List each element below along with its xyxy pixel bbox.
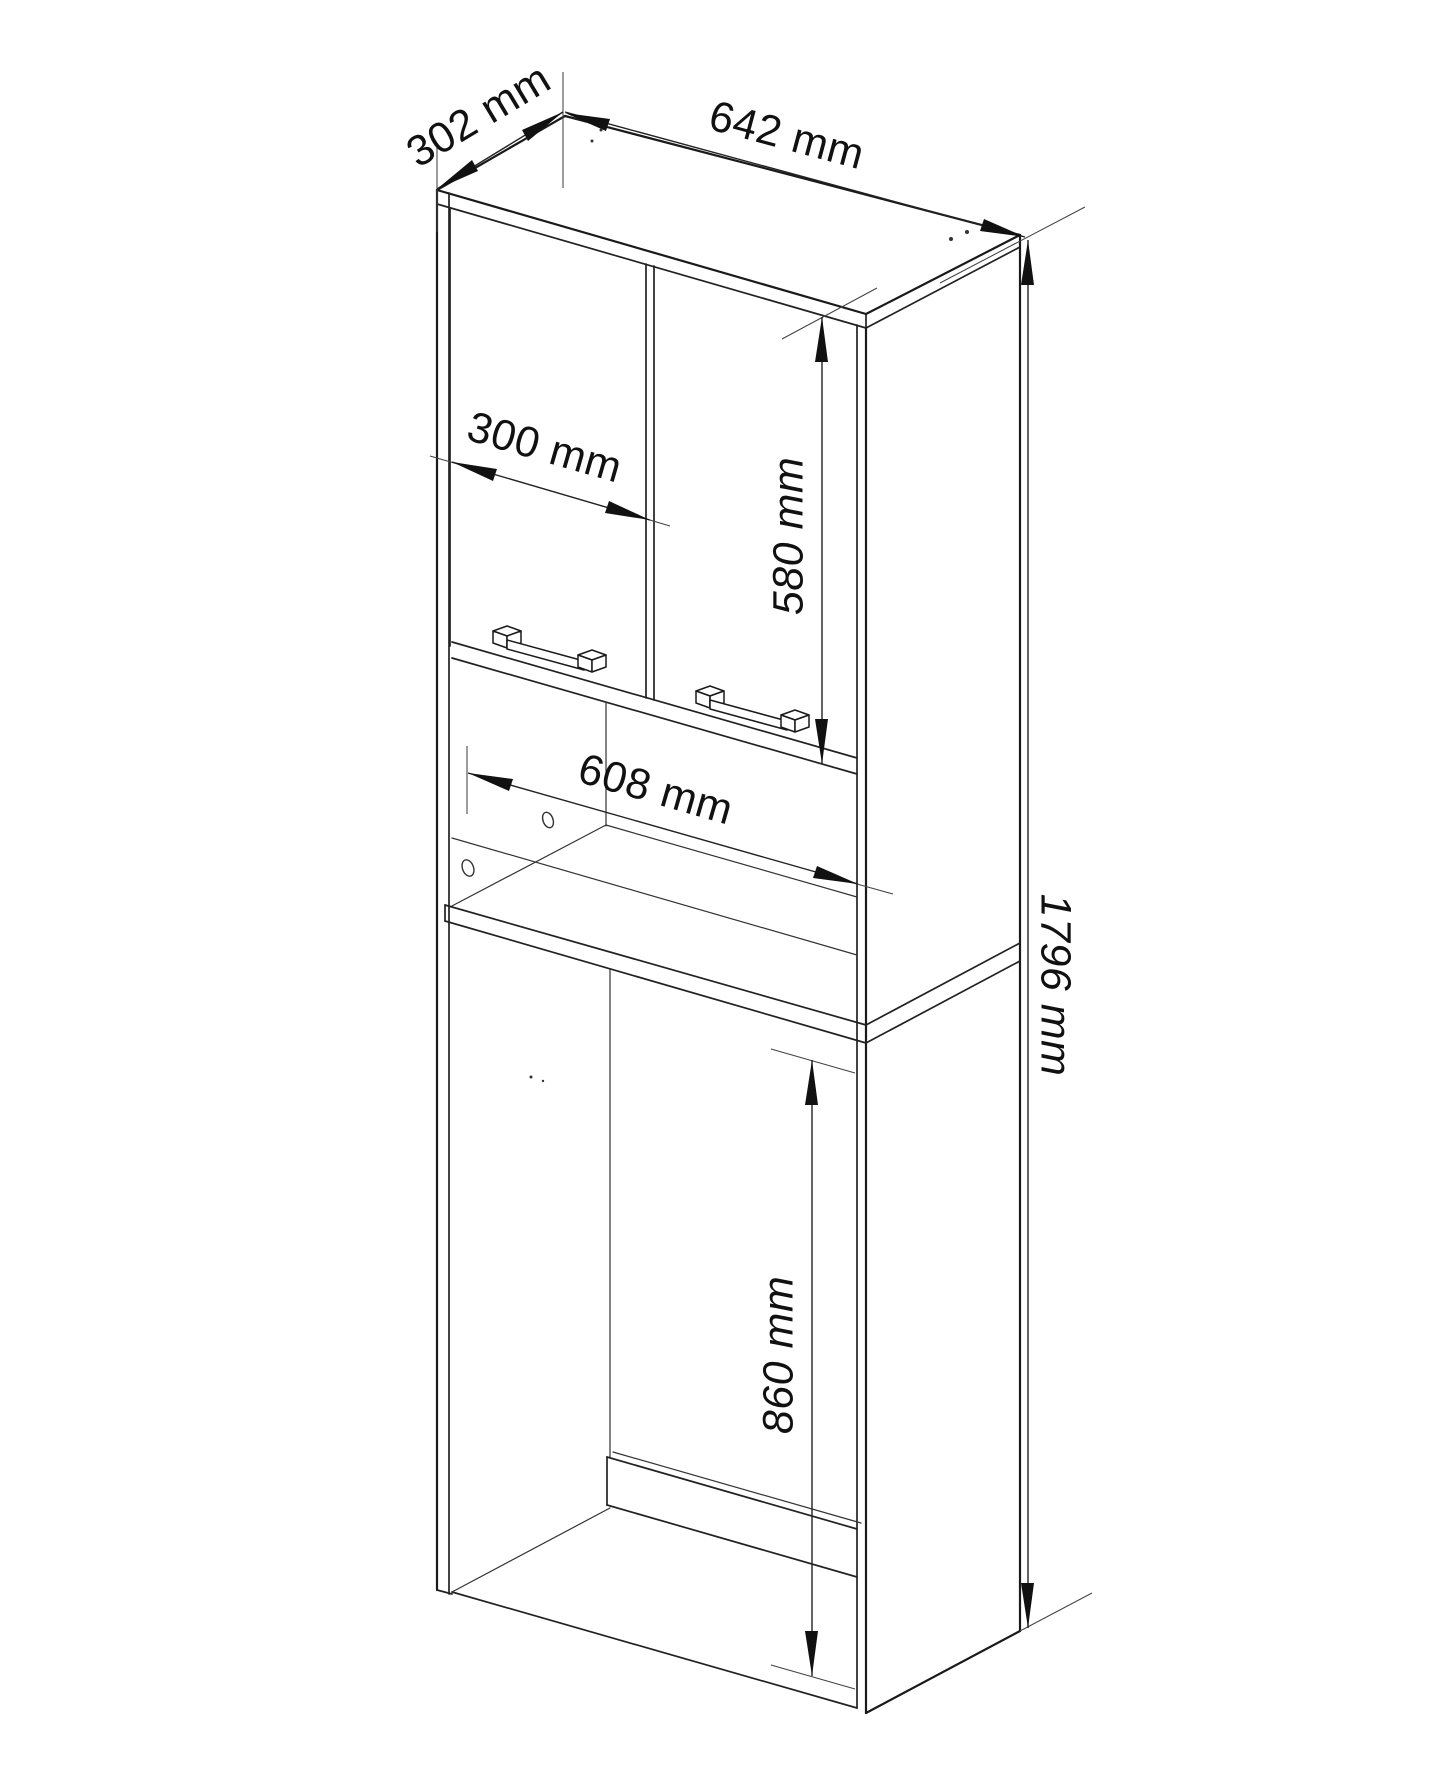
left-door-handle: [493, 626, 606, 672]
door-handles: [493, 626, 809, 732]
arrowhead: [815, 719, 828, 764]
plinth-board: [607, 1452, 861, 1577]
cabinet-top-face: [437, 116, 1020, 328]
dimension-label-door-height: 580 mm: [764, 457, 812, 615]
arrowhead: [813, 866, 858, 884]
cabinet-body: [437, 116, 1020, 1713]
dimension-door-height: 580 mm: [764, 288, 877, 764]
shelf-pin-hole: [460, 858, 476, 878]
dimension-label-top-width: 642 mm: [704, 92, 869, 179]
dimension-top-depth: 302 mm: [398, 54, 563, 232]
right-door-handle: [696, 686, 809, 732]
dimension-opening-height: 860 mm: [754, 1049, 855, 1689]
arrowhead: [805, 1631, 818, 1676]
arrowhead: [452, 462, 497, 481]
arrowhead: [565, 113, 610, 131]
arrowhead: [805, 1060, 818, 1105]
shelf-pin-hole: [541, 811, 556, 829]
technical-drawing-page: 302 mm 642 mm 300 mm: [0, 0, 1445, 1782]
cabinet-technical-drawing: 302 mm 642 mm 300 mm: [0, 0, 1445, 1782]
dimension-label-opening-height: 860 mm: [754, 1276, 802, 1434]
dimension-label-top-depth: 302 mm: [398, 54, 558, 177]
dimension-door-width: 300 mm: [430, 403, 670, 526]
dimension-label-inner-width: 608 mm: [573, 745, 738, 835]
arrowhead: [1021, 1583, 1034, 1628]
arrowhead: [605, 501, 650, 520]
dimension-overall-height: 1796 mm: [1020, 240, 1092, 1631]
dimension-annotations: 302 mm 642 mm 300 mm: [398, 54, 1092, 1689]
bottom-board-band: [445, 905, 1020, 1043]
dimension-label-overall-height: 1796 mm: [1032, 894, 1080, 1077]
arrowhead: [1021, 240, 1034, 285]
arrowhead: [815, 317, 828, 362]
arrowhead: [522, 112, 563, 141]
arrowhead: [980, 219, 1025, 237]
dimension-inner-width: 608 mm: [467, 745, 893, 894]
dimension-label-door-width: 300 mm: [462, 403, 627, 493]
arrowhead: [468, 773, 513, 791]
